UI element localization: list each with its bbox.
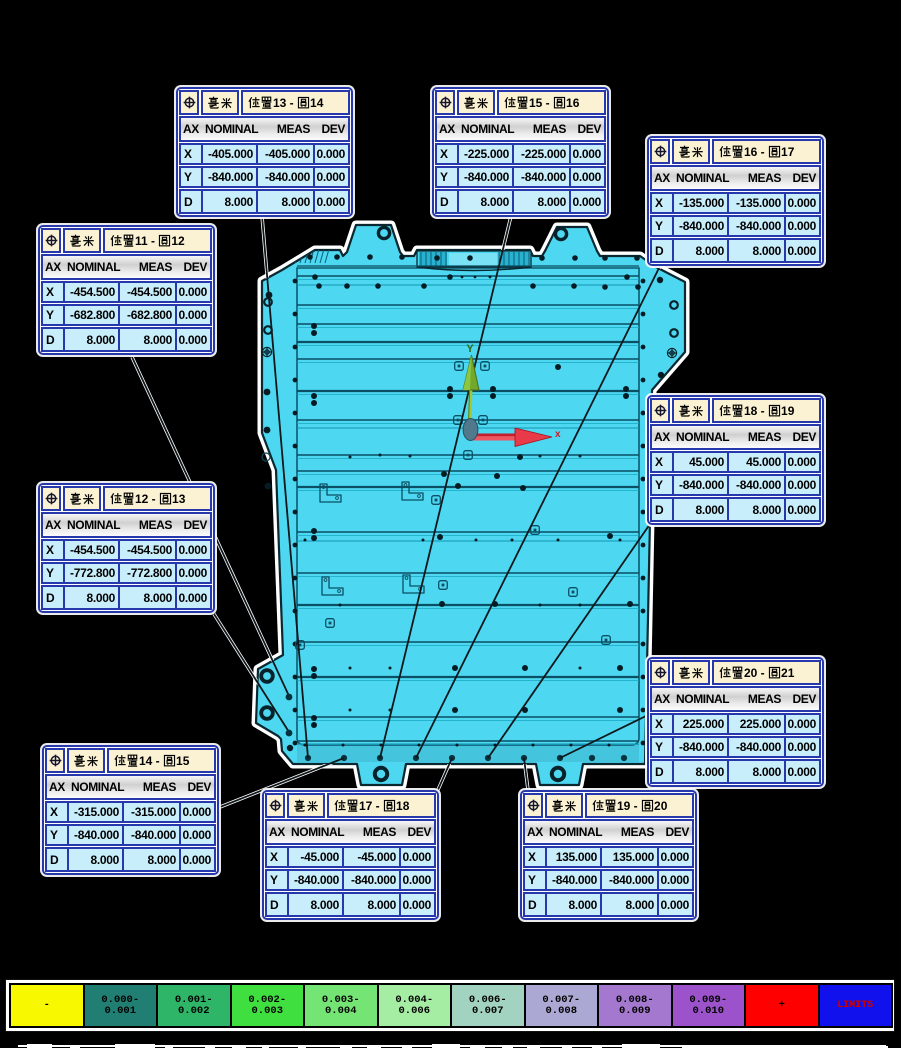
svg-text:Y: Y <box>466 343 474 355</box>
svg-text:x: x <box>555 429 561 440</box>
